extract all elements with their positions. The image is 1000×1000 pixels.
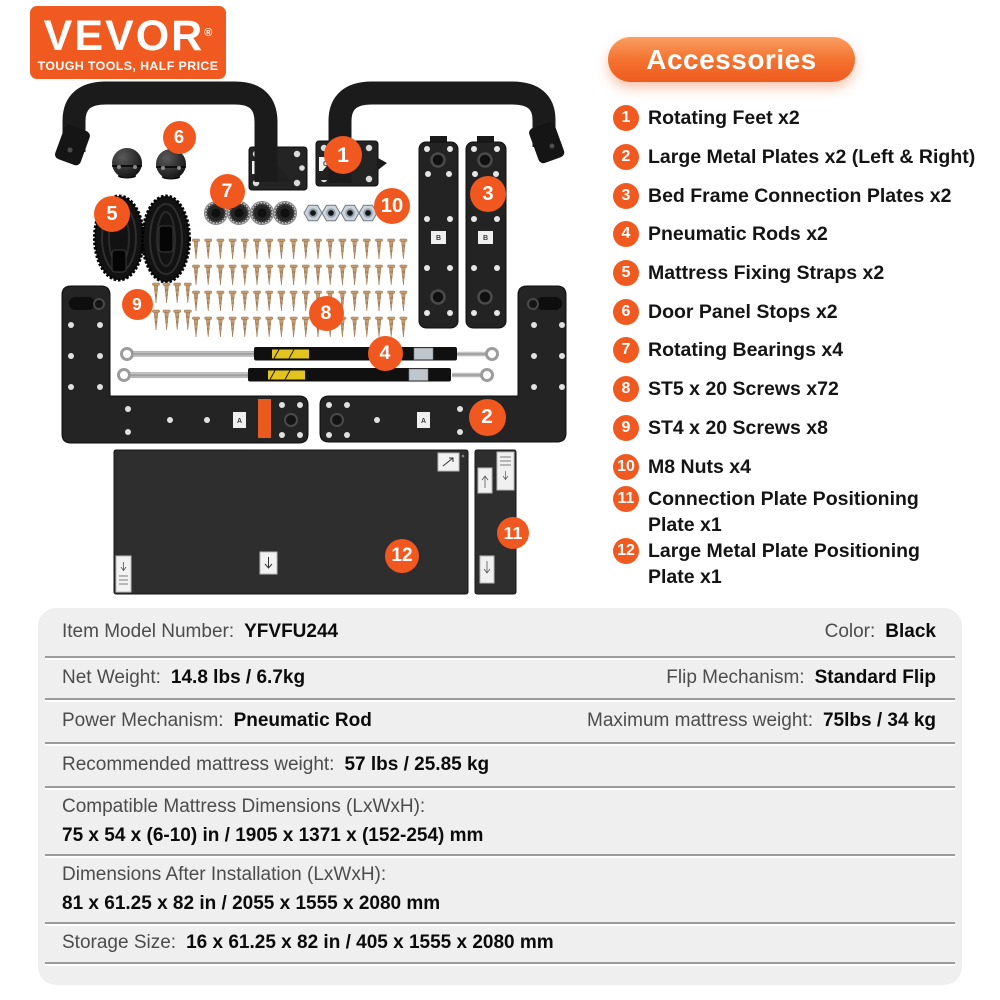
spec-cell: Color:Black [825, 621, 936, 643]
spec-value: Standard Flip [815, 667, 936, 689]
spec-label: Dimensions After Installation (LxWxH): [62, 864, 386, 886]
spec-value: 14.8 lbs / 6.7kg [171, 667, 305, 689]
part-callout-11: 11 [497, 517, 529, 549]
spec-value: Pneumatic Rod [234, 710, 372, 732]
spec-cell: Recommended mattress weight:57 lbs / 25.… [62, 754, 489, 776]
spec-cell: Net Weight:14.8 lbs / 6.7kg [62, 667, 305, 689]
part-callout-2: 2 [469, 399, 506, 436]
spec-value: YFVFU244 [244, 621, 338, 643]
part-callout-6: 6 [163, 121, 196, 154]
divider [45, 962, 955, 964]
part-callout-10: 10 [374, 188, 410, 224]
spec-label: Item Model Number: [62, 621, 234, 643]
spec-value: 81 x 61.25 x 82 in / 2055 x 1555 x 2080 … [62, 893, 440, 915]
part-callout-7: 7 [210, 174, 245, 209]
spec-label: Compatible Mattress Dimensions (LxWxH): [62, 796, 425, 818]
spec-row: Dimensions After Installation (LxWxH):81… [38, 856, 962, 922]
part-callout-3: 3 [470, 176, 506, 212]
spec-row: Item Model Number:YFVFU244Color:Black [38, 608, 962, 656]
part-callout-9: 9 [122, 289, 153, 320]
spec-row: Compatible Mattress Dimensions (LxWxH):7… [38, 788, 962, 854]
part-callout-8: 8 [309, 296, 344, 331]
spec-value: 16 x 61.25 x 82 in / 405 x 1555 x 2080 m… [186, 932, 554, 954]
part-callout-4: 4 [368, 336, 403, 371]
part-callout-12: 12 [385, 539, 419, 573]
spec-label: Recommended mattress weight: [62, 754, 334, 776]
spec-row: Net Weight:14.8 lbs / 6.7kgFlip Mechanis… [38, 658, 962, 698]
spec-label: Maximum mattress weight: [587, 710, 813, 732]
spec-row: Storage Size:16 x 61.25 x 82 in / 405 x … [38, 924, 962, 962]
spec-value: Black [885, 621, 936, 643]
spec-cell: Maximum mattress weight:75lbs / 34 kg [587, 710, 936, 732]
spec-cell: Power Mechanism:Pneumatic Rod [62, 710, 372, 732]
spec-value: 57 lbs / 25.85 kg [344, 754, 489, 776]
spec-label: Storage Size: [62, 932, 176, 954]
spec-label: Flip Mechanism: [666, 667, 804, 689]
spec-label: Net Weight: [62, 667, 161, 689]
spec-label: Power Mechanism: [62, 710, 224, 732]
part-callout-1: 1 [324, 136, 362, 174]
spec-cell: Item Model Number:YFVFU244 [62, 621, 338, 643]
spec-cell: Flip Mechanism:Standard Flip [666, 667, 936, 689]
parts-callouts: 123456789101112 [0, 0, 1000, 620]
spec-label: Color: [825, 621, 876, 643]
spec-value: 75lbs / 34 kg [823, 710, 936, 732]
spec-table: Item Model Number:YFVFU244Color:BlackNet… [38, 608, 962, 985]
spec-cell: Storage Size:16 x 61.25 x 82 in / 405 x … [62, 932, 554, 954]
spec-row: Power Mechanism:Pneumatic RodMaximum mat… [38, 700, 962, 742]
spec-value: 75 x 54 x (6-10) in / 1905 x 1371 x (152… [62, 825, 483, 847]
part-callout-5: 5 [94, 196, 130, 232]
spec-row: Recommended mattress weight:57 lbs / 25.… [38, 744, 962, 786]
